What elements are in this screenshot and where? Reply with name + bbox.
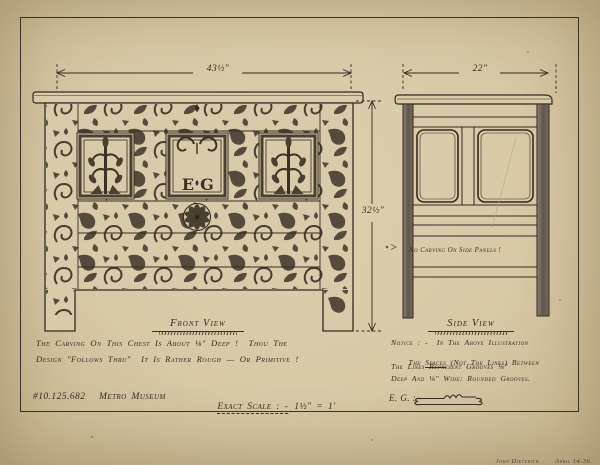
side-panel-note: No Carving On Side Panels ! bbox=[409, 247, 501, 254]
front-view-drawing: E G bbox=[33, 92, 363, 331]
carved-initial-right: G bbox=[200, 175, 214, 194]
front-view-title: Front View bbox=[152, 318, 244, 332]
front-panel-left bbox=[77, 133, 134, 199]
side-stile-left bbox=[403, 104, 413, 318]
scale-value: 1½″ = 1′ bbox=[294, 402, 335, 412]
front-panel-right bbox=[259, 133, 318, 199]
accession-number: #10.125.682 bbox=[33, 392, 85, 402]
paper-scratch bbox=[492, 138, 516, 228]
front-panel-center: E G bbox=[166, 133, 228, 199]
signature-date: April 14-36. bbox=[555, 458, 592, 465]
side-stile-right bbox=[537, 104, 549, 316]
museum-name: Metro Museum bbox=[99, 392, 166, 402]
groove-example-label: E. G. : - bbox=[389, 394, 422, 404]
scale-note: Exact Scale : -1½″ = 1′ bbox=[198, 392, 336, 423]
front-height-dimension-label: 32½″ bbox=[351, 206, 395, 216]
side-view-drawing bbox=[395, 95, 552, 318]
front-width-dimension-label: 43½″ bbox=[195, 64, 241, 74]
side-top-board bbox=[395, 95, 552, 104]
artist-signature: John Dieterich bbox=[496, 458, 540, 465]
groove-profile-sketch bbox=[415, 395, 482, 405]
signature-line: John DieterichApril 14-36. bbox=[487, 452, 593, 465]
side-view-title: Side View bbox=[428, 318, 514, 332]
carved-initial-left: E bbox=[182, 175, 194, 194]
stray-mark bbox=[386, 245, 396, 250]
front-caption-line2: Design "Follows Thru" It Is Rather Rough… bbox=[36, 355, 299, 364]
chest-top-board bbox=[33, 92, 363, 103]
front-caption-line1: The Carving On This Chest Is About ⅛″ De… bbox=[36, 339, 287, 348]
scale-label: Exact Scale : - bbox=[217, 402, 288, 414]
side-notice-line1: Notice : - In The Above Illustration bbox=[391, 339, 528, 347]
side-notice-line3: The Lines Represent Grooves ⅛″ bbox=[391, 363, 508, 371]
side-notice-line4: Deep And ⅛″ Wide: Rounded Grooves. bbox=[391, 375, 530, 383]
rosette-medallion bbox=[184, 204, 211, 231]
side-width-dimension-label: 22″ bbox=[461, 64, 499, 74]
drawing-sheet: E G bbox=[0, 0, 600, 465]
